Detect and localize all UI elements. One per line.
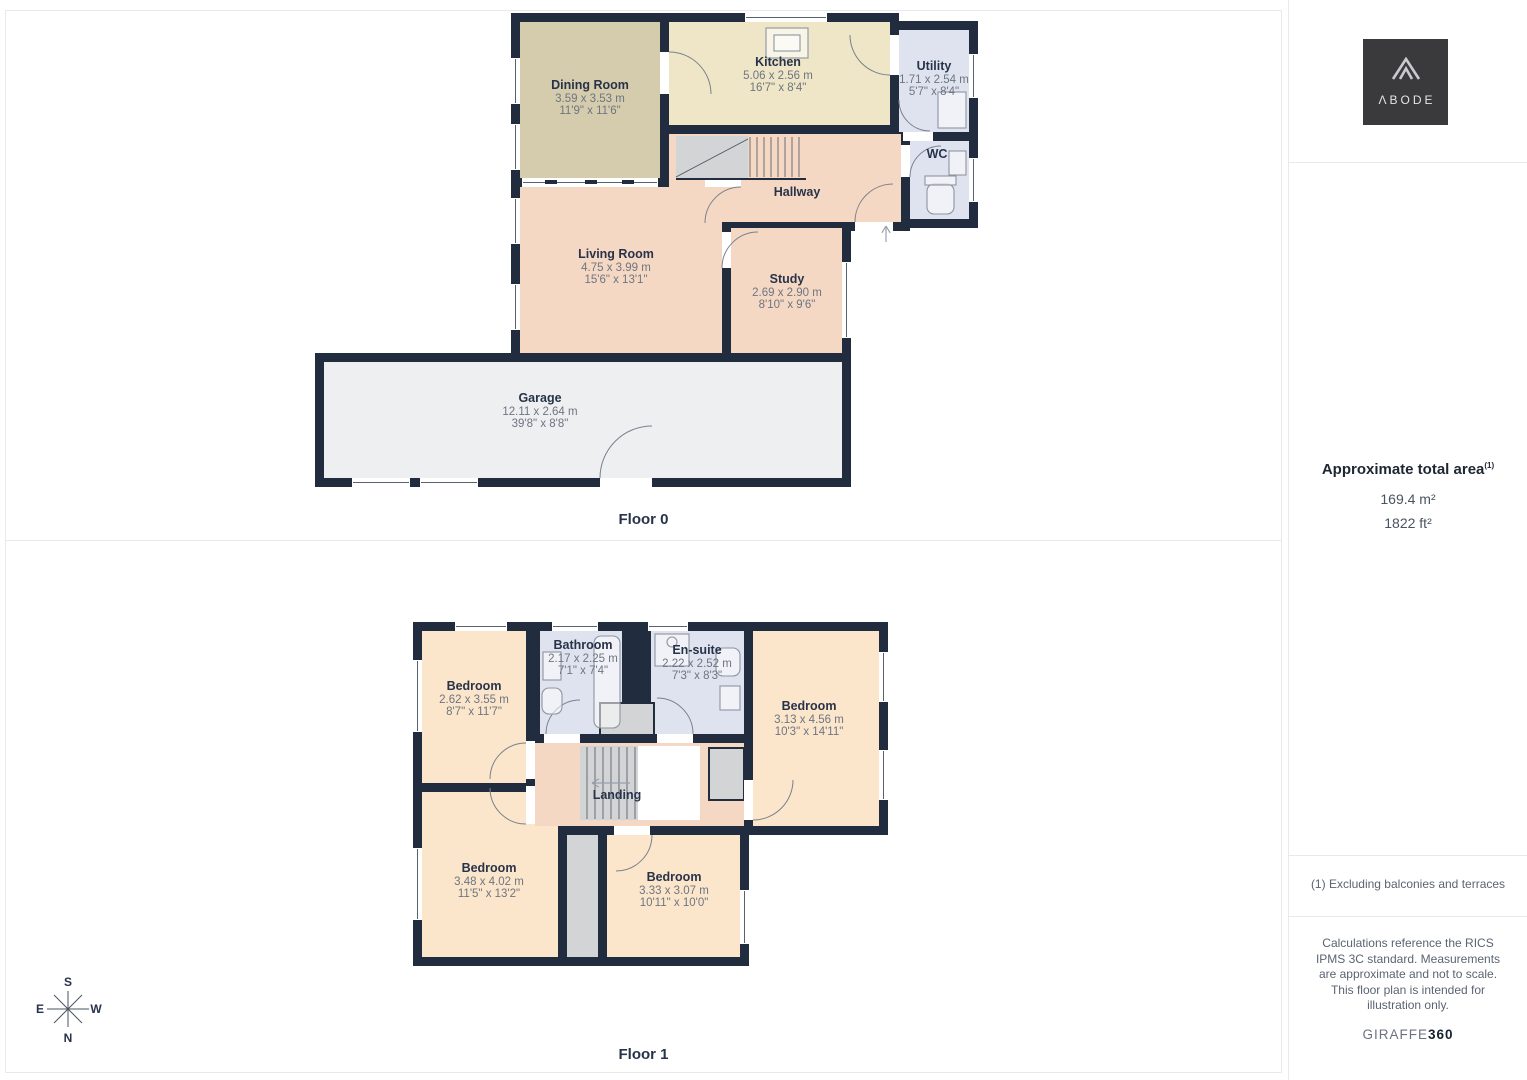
room-dim-m-bedroom-2: 3.13 x 4.56 m (774, 714, 844, 726)
room-dim-m-bedroom-1: 2.62 x 3.55 m (439, 694, 509, 706)
main-panel: Dining Room3.59 x 3.53 m11'9" x 11'6"Kit… (5, 10, 1282, 1073)
closet (709, 748, 744, 800)
fixture-icon (720, 686, 740, 710)
room-label-bedroom-1: Bedroom (447, 679, 502, 693)
fixture-icon (925, 176, 956, 185)
fixture-icon (949, 151, 966, 175)
brand-light: GIRAFFE (1362, 1027, 1428, 1042)
compass-top: S (64, 975, 72, 989)
room-dim-m-kitchen: 5.06 x 2.56 m (743, 70, 813, 82)
room-dim-ft-dining-room: 11'9" x 11'6" (559, 105, 620, 117)
room-label-garage: Garage (518, 391, 561, 405)
floor0-svg: Dining Room3.59 x 3.53 m11'9" x 11'6"Kit… (300, 12, 990, 498)
room-label-wc: WC (927, 147, 948, 161)
floor0-plan: Dining Room3.59 x 3.53 m11'9" x 11'6"Kit… (300, 12, 990, 503)
sidebar-divider (1289, 916, 1527, 917)
door-opening (614, 826, 650, 835)
floor1-plan: Bedroom2.62 x 3.55 m8'7" x 11'7"Bathroom… (404, 610, 898, 975)
room-dim-ft-garage: 39'8" x 8'8" (512, 418, 569, 430)
room-dim-ft-bedroom-3: 11'5" x 13'2" (458, 888, 520, 900)
total-area-title: Approximate total area(1) (1289, 461, 1527, 478)
compass-left: E (36, 1002, 44, 1016)
door-opening (526, 741, 535, 779)
room-label-bedroom-3: Bedroom (462, 861, 517, 875)
stair-part (545, 180, 557, 184)
abode-logo-text: ΛBODE (1378, 93, 1435, 107)
sidebar-divider (1289, 855, 1527, 856)
door-opening (890, 35, 899, 75)
door-opening (903, 132, 933, 141)
total-area-m2: 169.4 m² (1289, 491, 1527, 507)
compass-rose: SNEW (28, 972, 113, 1052)
fixture-icon (927, 184, 954, 214)
room-dim-m-living-room: 4.75 x 3.99 m (581, 262, 651, 274)
panel-divider (6, 540, 1281, 541)
room-dim-ft-living-room: 15'6" x 13'1" (584, 274, 647, 286)
sidebar-divider (1289, 162, 1527, 163)
room-dim-m-dining-room: 3.59 x 3.53 m (555, 93, 625, 105)
room-dim-m-en-suite: 2.22 x 2.52 m (662, 658, 732, 670)
room-dim-m-bedroom-3: 3.48 x 4.02 m (454, 876, 524, 888)
floor1-label: Floor 1 (6, 1046, 1281, 1063)
room-dim-ft-kitchen: 16'7" x 8'4" (750, 82, 807, 94)
compass-svg: SNEW (28, 972, 113, 1047)
stair-part (585, 180, 597, 184)
room-label-living-room: Living Room (578, 247, 654, 261)
abode-logo-icon (1390, 57, 1422, 86)
fixture-icon (774, 35, 800, 51)
compass-right: W (90, 1002, 102, 1016)
stair-part (638, 746, 700, 820)
disclaimer-text: Calculations reference the RICS IPMS 3C … (1313, 936, 1503, 1014)
total-area-ft2: 1822 ft² (1289, 515, 1527, 531)
room-label-kitchen: Kitchen (755, 55, 801, 69)
room-dim-m-bathroom: 2.17 x 2.25 m (548, 653, 618, 665)
door-opening (544, 734, 580, 743)
area-footnote-marker: (1) (1484, 461, 1494, 470)
door-opening (660, 52, 669, 94)
door-opening (855, 222, 893, 231)
room-label-bedroom-4: Bedroom (647, 870, 702, 884)
room-dim-ft-study: 8'10" x 9'6" (759, 299, 816, 311)
compass-bottom: N (64, 1031, 73, 1045)
room-dim-ft-utility: 5'7" x 8'4" (909, 86, 959, 98)
room-label-bathroom: Bathroom (553, 638, 612, 652)
room-dim-ft-bedroom-1: 8'7" x 11'7" (446, 706, 502, 718)
floorplan-page: Dining Room3.59 x 3.53 m11'9" x 11'6"Kit… (0, 0, 1527, 1080)
floor1-svg: Bedroom2.62 x 3.55 m8'7" x 11'7"Bathroom… (404, 610, 898, 970)
room-label-bedroom-2: Bedroom (782, 699, 837, 713)
brand-bold: 360 (1428, 1027, 1454, 1042)
room-corridor (567, 835, 598, 957)
room-dim-m-study: 2.69 x 2.90 m (752, 287, 822, 299)
room-dim-ft-en-suite: 7'3" x 8'3" (672, 670, 722, 682)
room-dim-m-bedroom-4: 3.33 x 3.07 m (639, 885, 709, 897)
room-label-hallway: Hallway (774, 185, 821, 199)
sidebar: ΛBODE Approximate total area(1) 169.4 m²… (1288, 0, 1527, 1080)
door-opening (657, 734, 693, 743)
total-area-block: Approximate total area(1) 169.4 m² 1822 … (1289, 461, 1527, 531)
room-dim-ft-bedroom-4: 10'11" x 10'0" (640, 897, 709, 909)
door-opening (901, 145, 910, 177)
room-dim-ft-bedroom-2: 10'3" x 14'11" (775, 726, 844, 738)
stair-part (622, 180, 634, 184)
floor0-label: Floor 0 (6, 511, 1281, 528)
fixture-icon (542, 688, 562, 714)
excluding-footnote: (1) Excluding balconies and terraces (1289, 877, 1527, 891)
door-opening (526, 786, 535, 824)
abode-logo: ΛBODE (1363, 39, 1448, 125)
door-opening (600, 478, 652, 487)
room-garage (324, 362, 842, 478)
giraffe360-brand: GIRAFFE360 (1289, 1027, 1527, 1042)
room-label-utility: Utility (917, 59, 952, 73)
room-dim-m-utility: 1.71 x 2.54 m (899, 74, 969, 86)
room-label-en-suite: En-suite (672, 643, 721, 657)
room-dim-m-garage: 12.11 x 2.64 m (502, 406, 577, 418)
door-opening (744, 780, 753, 820)
room-label-landing: Landing (593, 788, 642, 802)
room-label-study: Study (770, 272, 805, 286)
room-label-dining-room: Dining Room (551, 78, 629, 92)
room-dim-ft-bathroom: 7'1" x 7'4" (558, 665, 608, 677)
